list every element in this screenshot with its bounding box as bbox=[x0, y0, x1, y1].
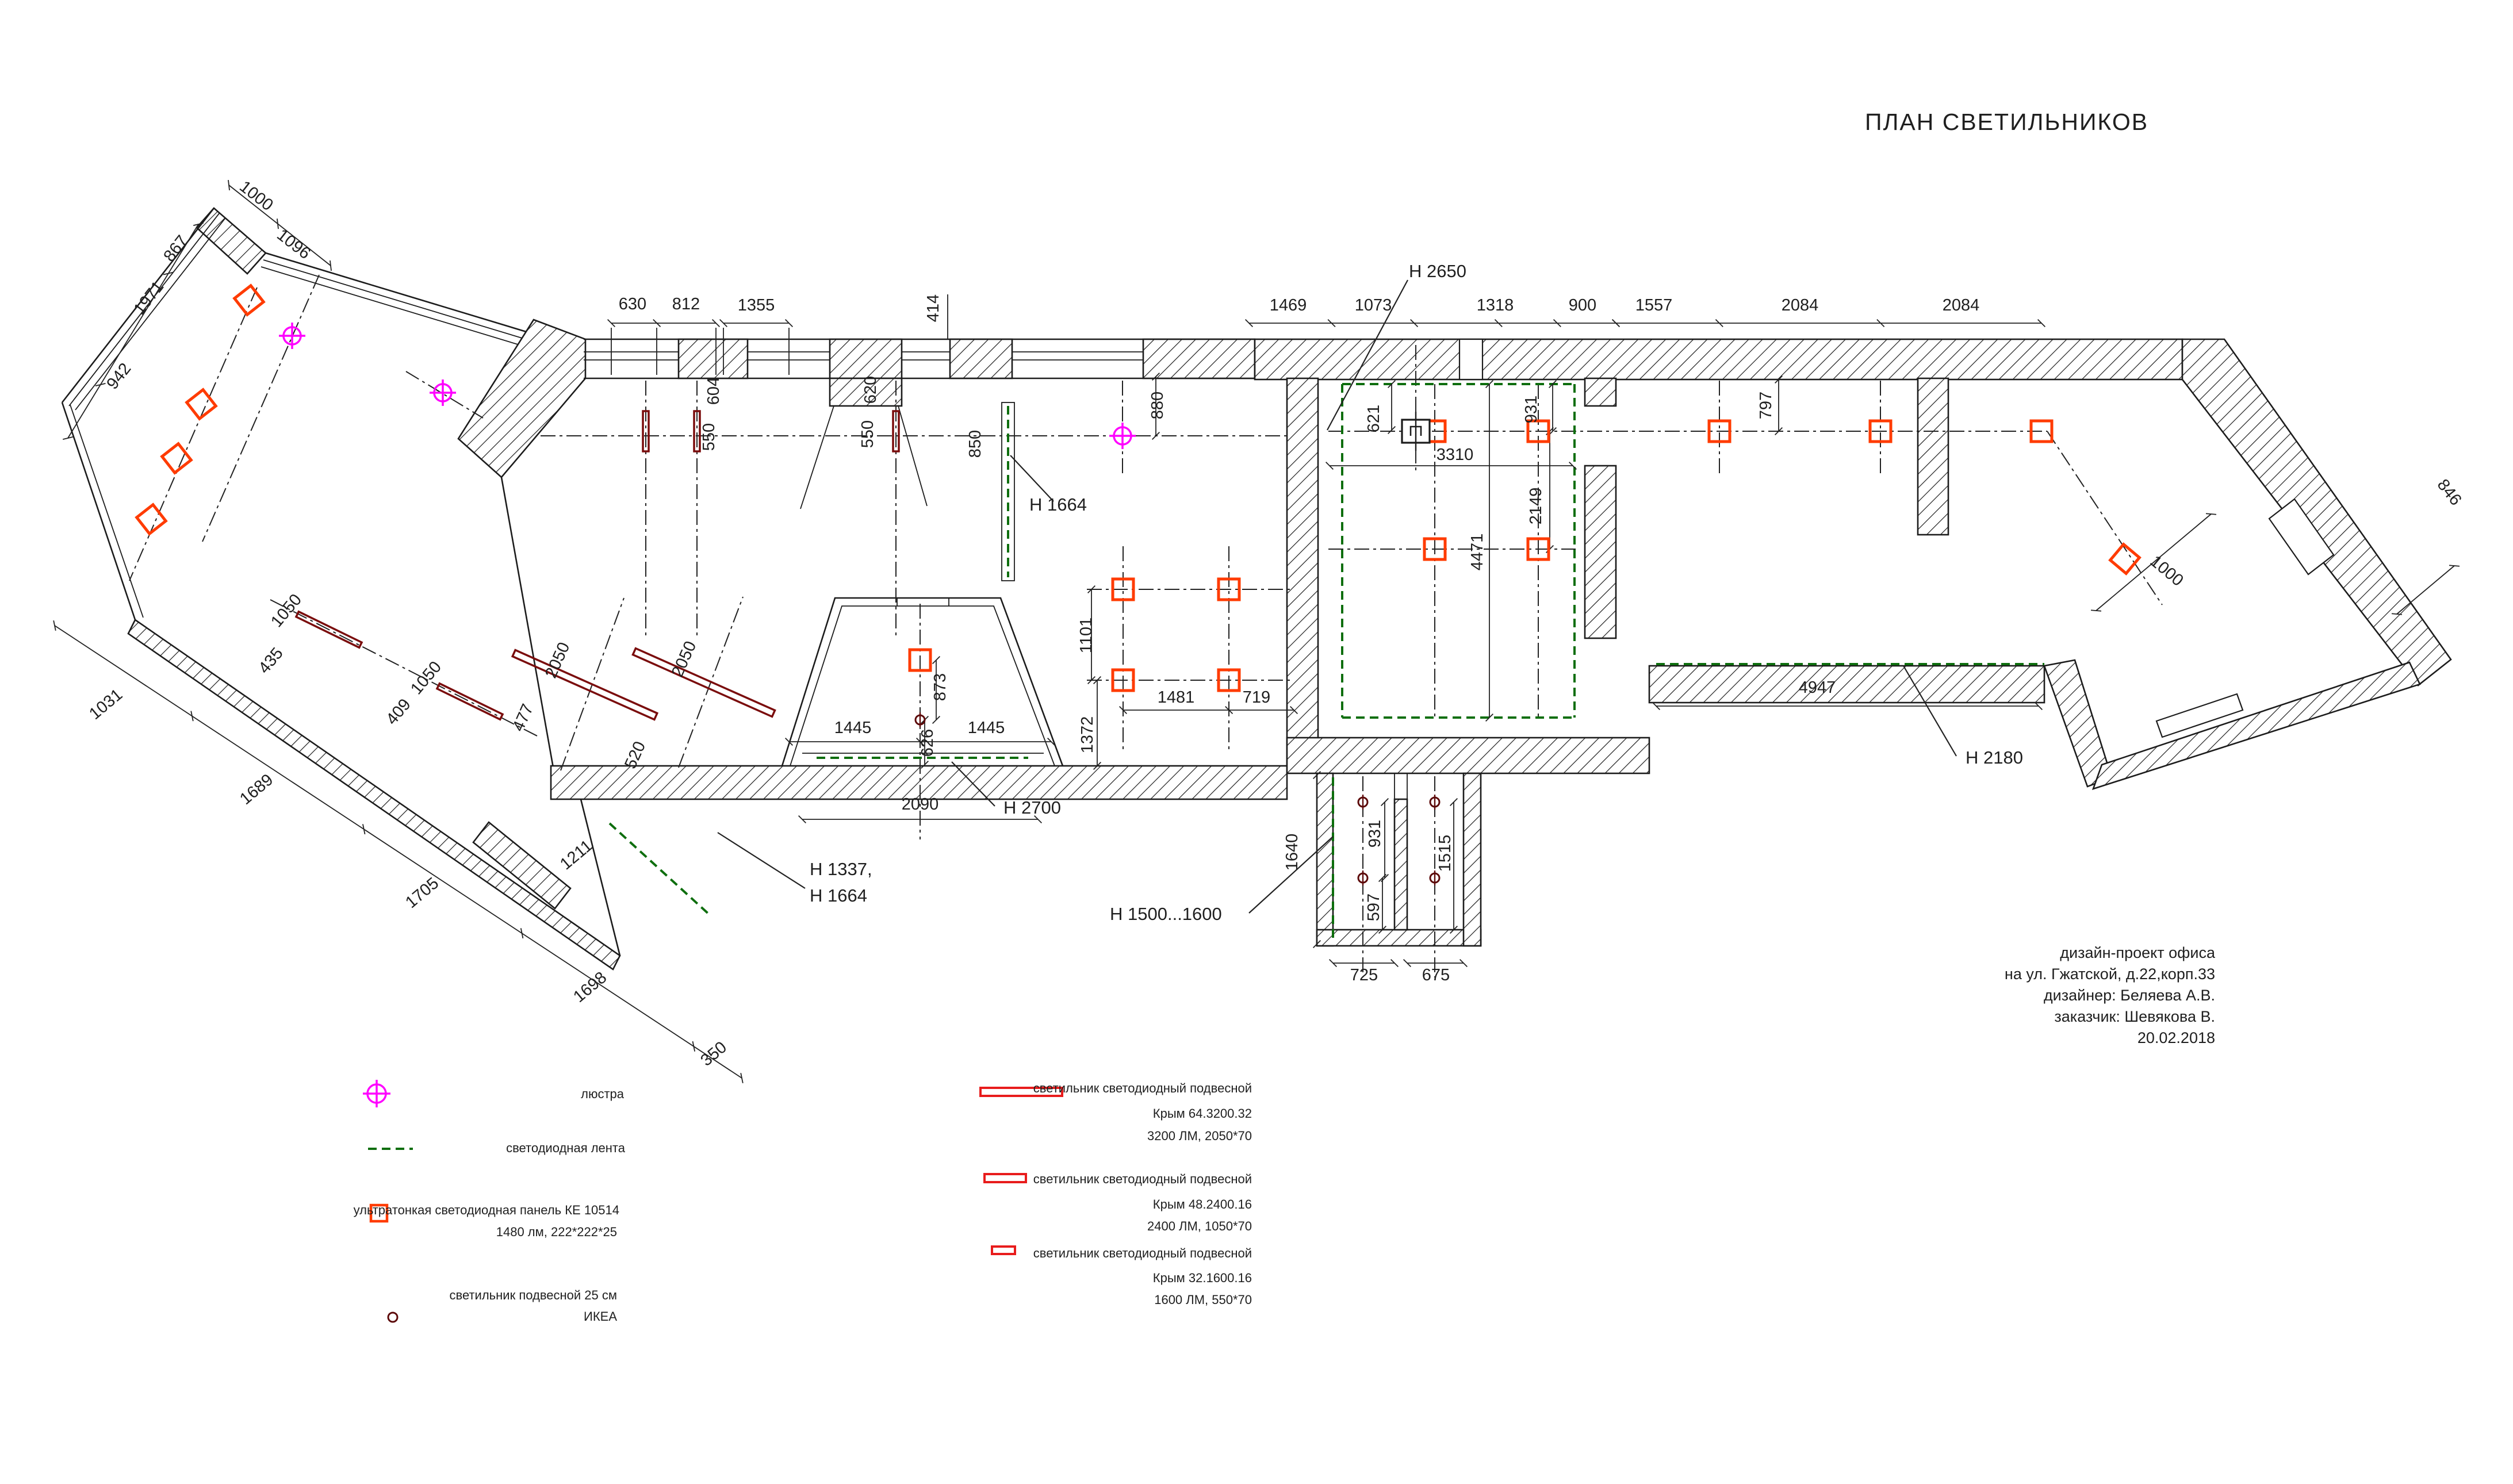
legend-label-pendant-25: светильник подвесной 25 см bbox=[450, 1288, 617, 1302]
dim-text: 2084 bbox=[1782, 296, 1819, 315]
legend-label-krym-32: 1600 ЛМ, 550*70 bbox=[1154, 1293, 1252, 1307]
dim-text: 1689 bbox=[236, 770, 277, 808]
height-label: H 2180 bbox=[1966, 747, 2023, 768]
dim-text: 846 bbox=[2434, 476, 2465, 509]
height-label: H 1500...1600 bbox=[1110, 904, 1222, 924]
pendant-symbol bbox=[1430, 795, 1439, 810]
dim-text: 620 bbox=[861, 376, 880, 404]
dim-text: 1445 bbox=[834, 719, 872, 737]
dim-text: 414 bbox=[924, 294, 943, 322]
dim-text: 597 bbox=[1365, 894, 1383, 921]
dim-text: 1515 bbox=[1436, 835, 1454, 872]
dim-text: 1050 bbox=[407, 658, 445, 698]
project-info-line: дизайнер: Беляева А.В. bbox=[2044, 987, 2215, 1004]
dim-text: 1557 bbox=[1635, 296, 1673, 315]
legend-label-krym-64: светильник светодиодный подвесной bbox=[1033, 1081, 1252, 1095]
legend-label-pendant-25: ИКЕА bbox=[584, 1309, 617, 1324]
legend-label-chandelier: люстра bbox=[581, 1087, 625, 1101]
dim-text: 719 bbox=[1243, 688, 1270, 707]
dim-text: 435 bbox=[255, 644, 287, 677]
dim-tick bbox=[2091, 610, 2101, 611]
dim-tick bbox=[2449, 565, 2460, 566]
junction-box bbox=[1402, 412, 1430, 451]
led-strip bbox=[610, 823, 710, 915]
dim-text: 2084 bbox=[1943, 296, 1980, 315]
dim-text: 850 bbox=[966, 430, 984, 458]
dim-text: 626 bbox=[918, 729, 937, 757]
dim-text: 350 bbox=[697, 1038, 730, 1070]
dim-text: 409 bbox=[382, 695, 415, 728]
dim-text: 931 bbox=[1522, 396, 1541, 423]
legend-label-krym-64: 3200 ЛМ, 2050*70 bbox=[1147, 1129, 1252, 1143]
dim-line bbox=[55, 626, 742, 1078]
dim-text: 812 bbox=[672, 295, 700, 313]
height-label: H 1664 bbox=[810, 885, 867, 906]
project-info-line: 20.02.2018 bbox=[2137, 1029, 2215, 1046]
chandelier-symbol bbox=[279, 323, 305, 349]
dim-text: 1073 bbox=[1355, 296, 1392, 315]
height-label: H 1664 bbox=[1029, 494, 1087, 515]
dim-text: 1640 bbox=[1283, 834, 1301, 871]
dim-text: 1481 bbox=[1158, 688, 1195, 707]
legend-label-krym-32: Крым 32.1600.16 bbox=[1153, 1271, 1252, 1285]
krym-32-icon bbox=[992, 1247, 1015, 1254]
pendant-bar-symbol bbox=[633, 649, 775, 717]
dim-text: 873 bbox=[931, 673, 949, 701]
pendant-bars bbox=[296, 411, 899, 719]
dim-text: 1000 bbox=[2147, 552, 2187, 590]
dim-text: 900 bbox=[1569, 296, 1596, 315]
chandelier-icon bbox=[363, 1080, 390, 1107]
dim-text: 550 bbox=[700, 423, 718, 451]
legend-labels: люстрасветодиодная лентаультратонкая све… bbox=[354, 1081, 1252, 1324]
dim-text: 942 bbox=[103, 360, 135, 393]
dim-line bbox=[2397, 566, 2454, 614]
dim-text: 1372 bbox=[1078, 716, 1097, 754]
dim-tick bbox=[228, 180, 229, 190]
legend-label-led-panel: 1480 лм, 222*222*25 bbox=[496, 1225, 617, 1239]
dim-text: 1050 bbox=[267, 590, 305, 631]
dim-text: 880 bbox=[1148, 392, 1167, 419]
pendant-symbol bbox=[1358, 871, 1367, 885]
project-info-line: на ул. Гжатской, д.22,корп.33 bbox=[2005, 965, 2215, 983]
project-info-line: дизайн-проект офиса bbox=[2060, 944, 2216, 961]
project-info-line: заказчик: Шевякова В. bbox=[2054, 1008, 2215, 1025]
dim-text: 550 bbox=[859, 420, 877, 448]
dim-text: 2149 bbox=[1527, 488, 1545, 525]
dim-text: 621 bbox=[1365, 405, 1383, 432]
dim-text: 867 bbox=[160, 232, 191, 266]
legend-label-led-panel: ультратонкая светодиодная панель КЕ 1051… bbox=[354, 1203, 619, 1217]
chandelier-symbol bbox=[430, 379, 456, 406]
krym-48-icon bbox=[984, 1174, 1026, 1182]
dim-text: 725 bbox=[1350, 966, 1378, 984]
legend-label-krym-32: светильник светодиодный подвесной bbox=[1033, 1246, 1252, 1260]
dim-text: 1705 bbox=[402, 874, 442, 912]
dim-text: 1355 bbox=[738, 296, 775, 315]
legend-label-krym-48: светильник светодиодный подвесной bbox=[1033, 1172, 1252, 1186]
leader-line bbox=[718, 833, 805, 888]
pendant-symbol bbox=[915, 712, 925, 727]
dim-text: 931 bbox=[1366, 820, 1384, 848]
led-panel-symbol bbox=[235, 286, 264, 315]
dim-text: 4471 bbox=[1468, 534, 1487, 571]
dim-text: 797 bbox=[1757, 392, 1775, 419]
dim-text: 1101 bbox=[1077, 618, 1095, 653]
height-label: H 1337, bbox=[810, 859, 872, 879]
dim-text: 1318 bbox=[1477, 296, 1514, 315]
dim-text: 2090 bbox=[902, 795, 939, 814]
dim-text: 1211 bbox=[557, 837, 596, 874]
pendant-symbol bbox=[1358, 795, 1367, 810]
dim-text: 630 bbox=[619, 295, 646, 313]
junction-box-symbol bbox=[1402, 412, 1430, 451]
dim-text: 4947 bbox=[1799, 678, 1836, 697]
dim-text: 2050 bbox=[668, 638, 700, 680]
legend-label-krym-48: Крым 48.2400.16 bbox=[1153, 1197, 1252, 1211]
page-title: ПЛАН СВЕТИЛЬНИКОВ bbox=[1865, 109, 2148, 135]
pendant-bar-symbol bbox=[437, 684, 503, 719]
lighting-plan-sheet: 1000109686719719426308121355414604550620… bbox=[0, 0, 2513, 1484]
dimension-texts: 1000109686719719426308121355414604550620… bbox=[86, 177, 2465, 1069]
legend-label-led-strip: светодиодная лента bbox=[506, 1141, 626, 1155]
dim-tick bbox=[2206, 513, 2216, 515]
dim-text: 1698 bbox=[570, 968, 610, 1006]
pendant-25-icon bbox=[388, 1313, 397, 1322]
dim-tick bbox=[330, 260, 331, 271]
dim-text: 1000 bbox=[236, 177, 277, 214]
legend-label-krym-64: Крым 64.3200.32 bbox=[1153, 1106, 1252, 1121]
dim-text: 3310 bbox=[1436, 446, 1474, 464]
height-label: H 2700 bbox=[1003, 797, 1061, 818]
legend: люстрасветодиодная лентаультратонкая све… bbox=[354, 1080, 1252, 1324]
dim-text: 604 bbox=[704, 377, 723, 405]
dim-text: 477 bbox=[509, 701, 537, 734]
height-label: H 2650 bbox=[1409, 261, 1466, 281]
dim-text: 1445 bbox=[968, 719, 1005, 737]
project-info: дизайн-проект офисана ул. Гжатской, д.22… bbox=[2005, 944, 2216, 1046]
dim-tick bbox=[277, 218, 278, 229]
plan-drawing: 1000109686719719426308121355414604550620… bbox=[0, 0, 2513, 1484]
dim-text: 1469 bbox=[1270, 296, 1307, 315]
pendant-symbol bbox=[1430, 871, 1439, 885]
chandelier-symbol bbox=[1109, 423, 1136, 449]
dim-text: 1031 bbox=[86, 685, 126, 723]
dim-text: 675 bbox=[1422, 966, 1450, 984]
legend-label-krym-48: 2400 ЛМ, 1050*70 bbox=[1147, 1219, 1252, 1233]
